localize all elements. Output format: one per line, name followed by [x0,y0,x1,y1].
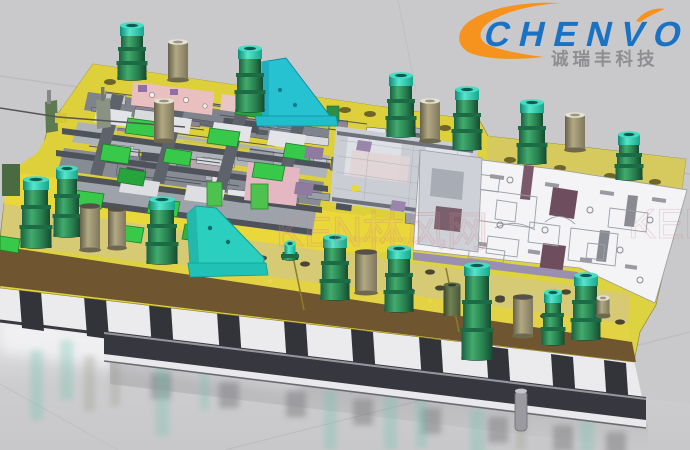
svg-text:KEN: KEN [628,200,690,247]
svg-text:CHENVO: CHENVO [481,14,690,53]
svg-text:KEN林风网: KEN林风网 [276,208,488,255]
svg-text:www.kenfengwang.com: www.kenfengwang.com [331,234,427,244]
svg-text:诚瑞丰科技: 诚瑞丰科技 [551,49,659,69]
